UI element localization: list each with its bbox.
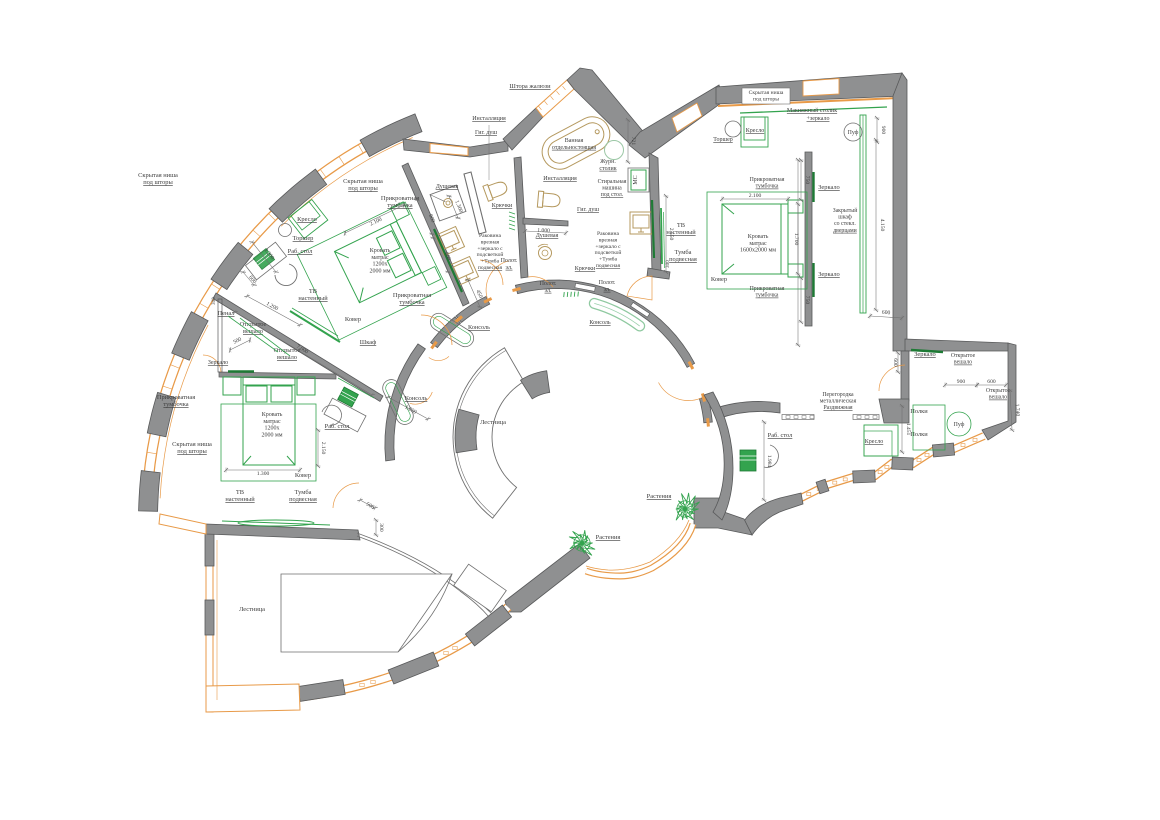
svg-text:Пенал: Пенал [218,310,236,317]
svg-text:Зеркало: Зеркало [208,360,228,366]
svg-text:Растения: Растения [596,534,621,541]
svg-text:750: 750 [804,296,810,305]
svg-text:Шкаф: Шкаф [360,339,376,346]
svg-text:Консоль: Консоль [589,320,610,326]
svg-text:Ковер: Ковер [711,276,727,283]
svg-text:1.451: 1.451 [905,423,911,436]
svg-text:ПерегородкаметаллическаяРаздви: ПерегородкаметаллическаяРаздвижная [820,392,857,411]
svg-text:Раб. стол: Раб. стол [325,423,350,430]
svg-text:1.740: 1.740 [1014,404,1021,417]
svg-text:600: 600 [882,310,891,317]
svg-text:Раковинаврезная+зеркало сподсв: Раковинаврезная+зеркало сподсветкой+Тумб… [595,231,622,269]
svg-text:Кресло: Кресло [297,216,317,223]
svg-text:+зеркало: +зеркало [807,116,830,122]
svg-text:721: 721 [630,137,636,146]
svg-text:2.150: 2.150 [320,442,326,455]
svg-text:1.300: 1.300 [257,471,270,477]
svg-text:Гиг. душ: Гиг. душ [577,207,599,213]
svg-text:Кресло: Кресло [746,128,764,134]
svg-text:Зеркало: Зеркало [914,351,936,358]
svg-text:Ковер: Ковер [345,316,361,323]
svg-text:750: 750 [804,176,810,185]
svg-text:Крючки: Крючки [492,203,513,209]
svg-text:Журн.столик: Журн.столик [599,159,616,172]
svg-text:1.984: 1.984 [766,455,772,468]
svg-text:300: 300 [665,260,671,268]
svg-text:Лестница: Лестница [239,606,265,613]
svg-text:Макияжный столик: Макияжный столик [787,107,837,114]
svg-text:МС: МС [633,175,639,184]
svg-text:Душевая: Душевая [436,184,459,190]
svg-text:300: 300 [211,297,217,305]
svg-text:600: 600 [987,379,996,385]
svg-text:Торшер: Торшер [713,137,733,143]
svg-text:Открытоевешало: Открытоевешало [951,353,976,366]
svg-text:Зеркало: Зеркало [818,184,840,191]
svg-text:Лестница: Лестница [480,419,506,426]
svg-text:Раб. стол: Раб. стол [288,248,313,255]
svg-text:Инсталляция: Инсталляция [472,116,506,122]
svg-text:600: 600 [892,358,898,367]
svg-text:Пуф: Пуф [848,129,859,136]
svg-text:300: 300 [378,523,384,532]
svg-text:Штора жалюзи: Штора жалюзи [509,83,551,90]
svg-text:Инсталляция: Инсталляция [543,176,577,182]
svg-text:Торшер: Торшер [293,235,314,242]
svg-text:Пуф: Пуф [954,421,965,428]
svg-text:Консоль: Консоль [405,395,428,402]
svg-text:2.550: 2.550 [668,228,674,241]
svg-text:Открытоевешало: Открытоевешало [986,388,1011,401]
svg-text:Крючки: Крючки [575,266,596,272]
svg-text:2.100: 2.100 [749,193,762,199]
svg-text:Зеркало: Зеркало [818,271,840,278]
svg-text:Гиг. душ: Гиг. душ [475,130,497,136]
svg-text:4.150: 4.150 [879,219,885,232]
svg-text:Скрытая нишапод шторы: Скрытая нишапод шторы [749,90,784,102]
svg-text:Раб. стол: Раб. стол [768,432,793,439]
svg-text:Кресло: Кресло [865,439,883,445]
svg-text:Растения: Растения [647,493,672,500]
svg-text:Скрытая нишапод шторы: Скрытая нишапод шторы [343,178,383,192]
svg-text:Закрытыйшкафсо стекл.дверцами: Закрытыйшкафсо стекл.дверцами [833,207,858,234]
svg-text:900: 900 [957,379,966,385]
svg-text:1.700: 1.700 [793,233,799,246]
svg-text:Раковинаврезная+зеркало сподсв: Раковинаврезная+зеркало сподсветкой+Тумб… [477,233,504,271]
svg-text:900: 900 [880,126,886,135]
svg-text:Консоль: Консоль [468,324,490,331]
svg-text:Скрытая нишапод шторы: Скрытая нишапод шторы [172,441,212,455]
svg-text:Скрытая нишапод шторы: Скрытая нишапод шторы [138,172,178,186]
svg-text:1.000: 1.000 [537,228,550,235]
svg-text:Ковер: Ковер [295,472,311,479]
